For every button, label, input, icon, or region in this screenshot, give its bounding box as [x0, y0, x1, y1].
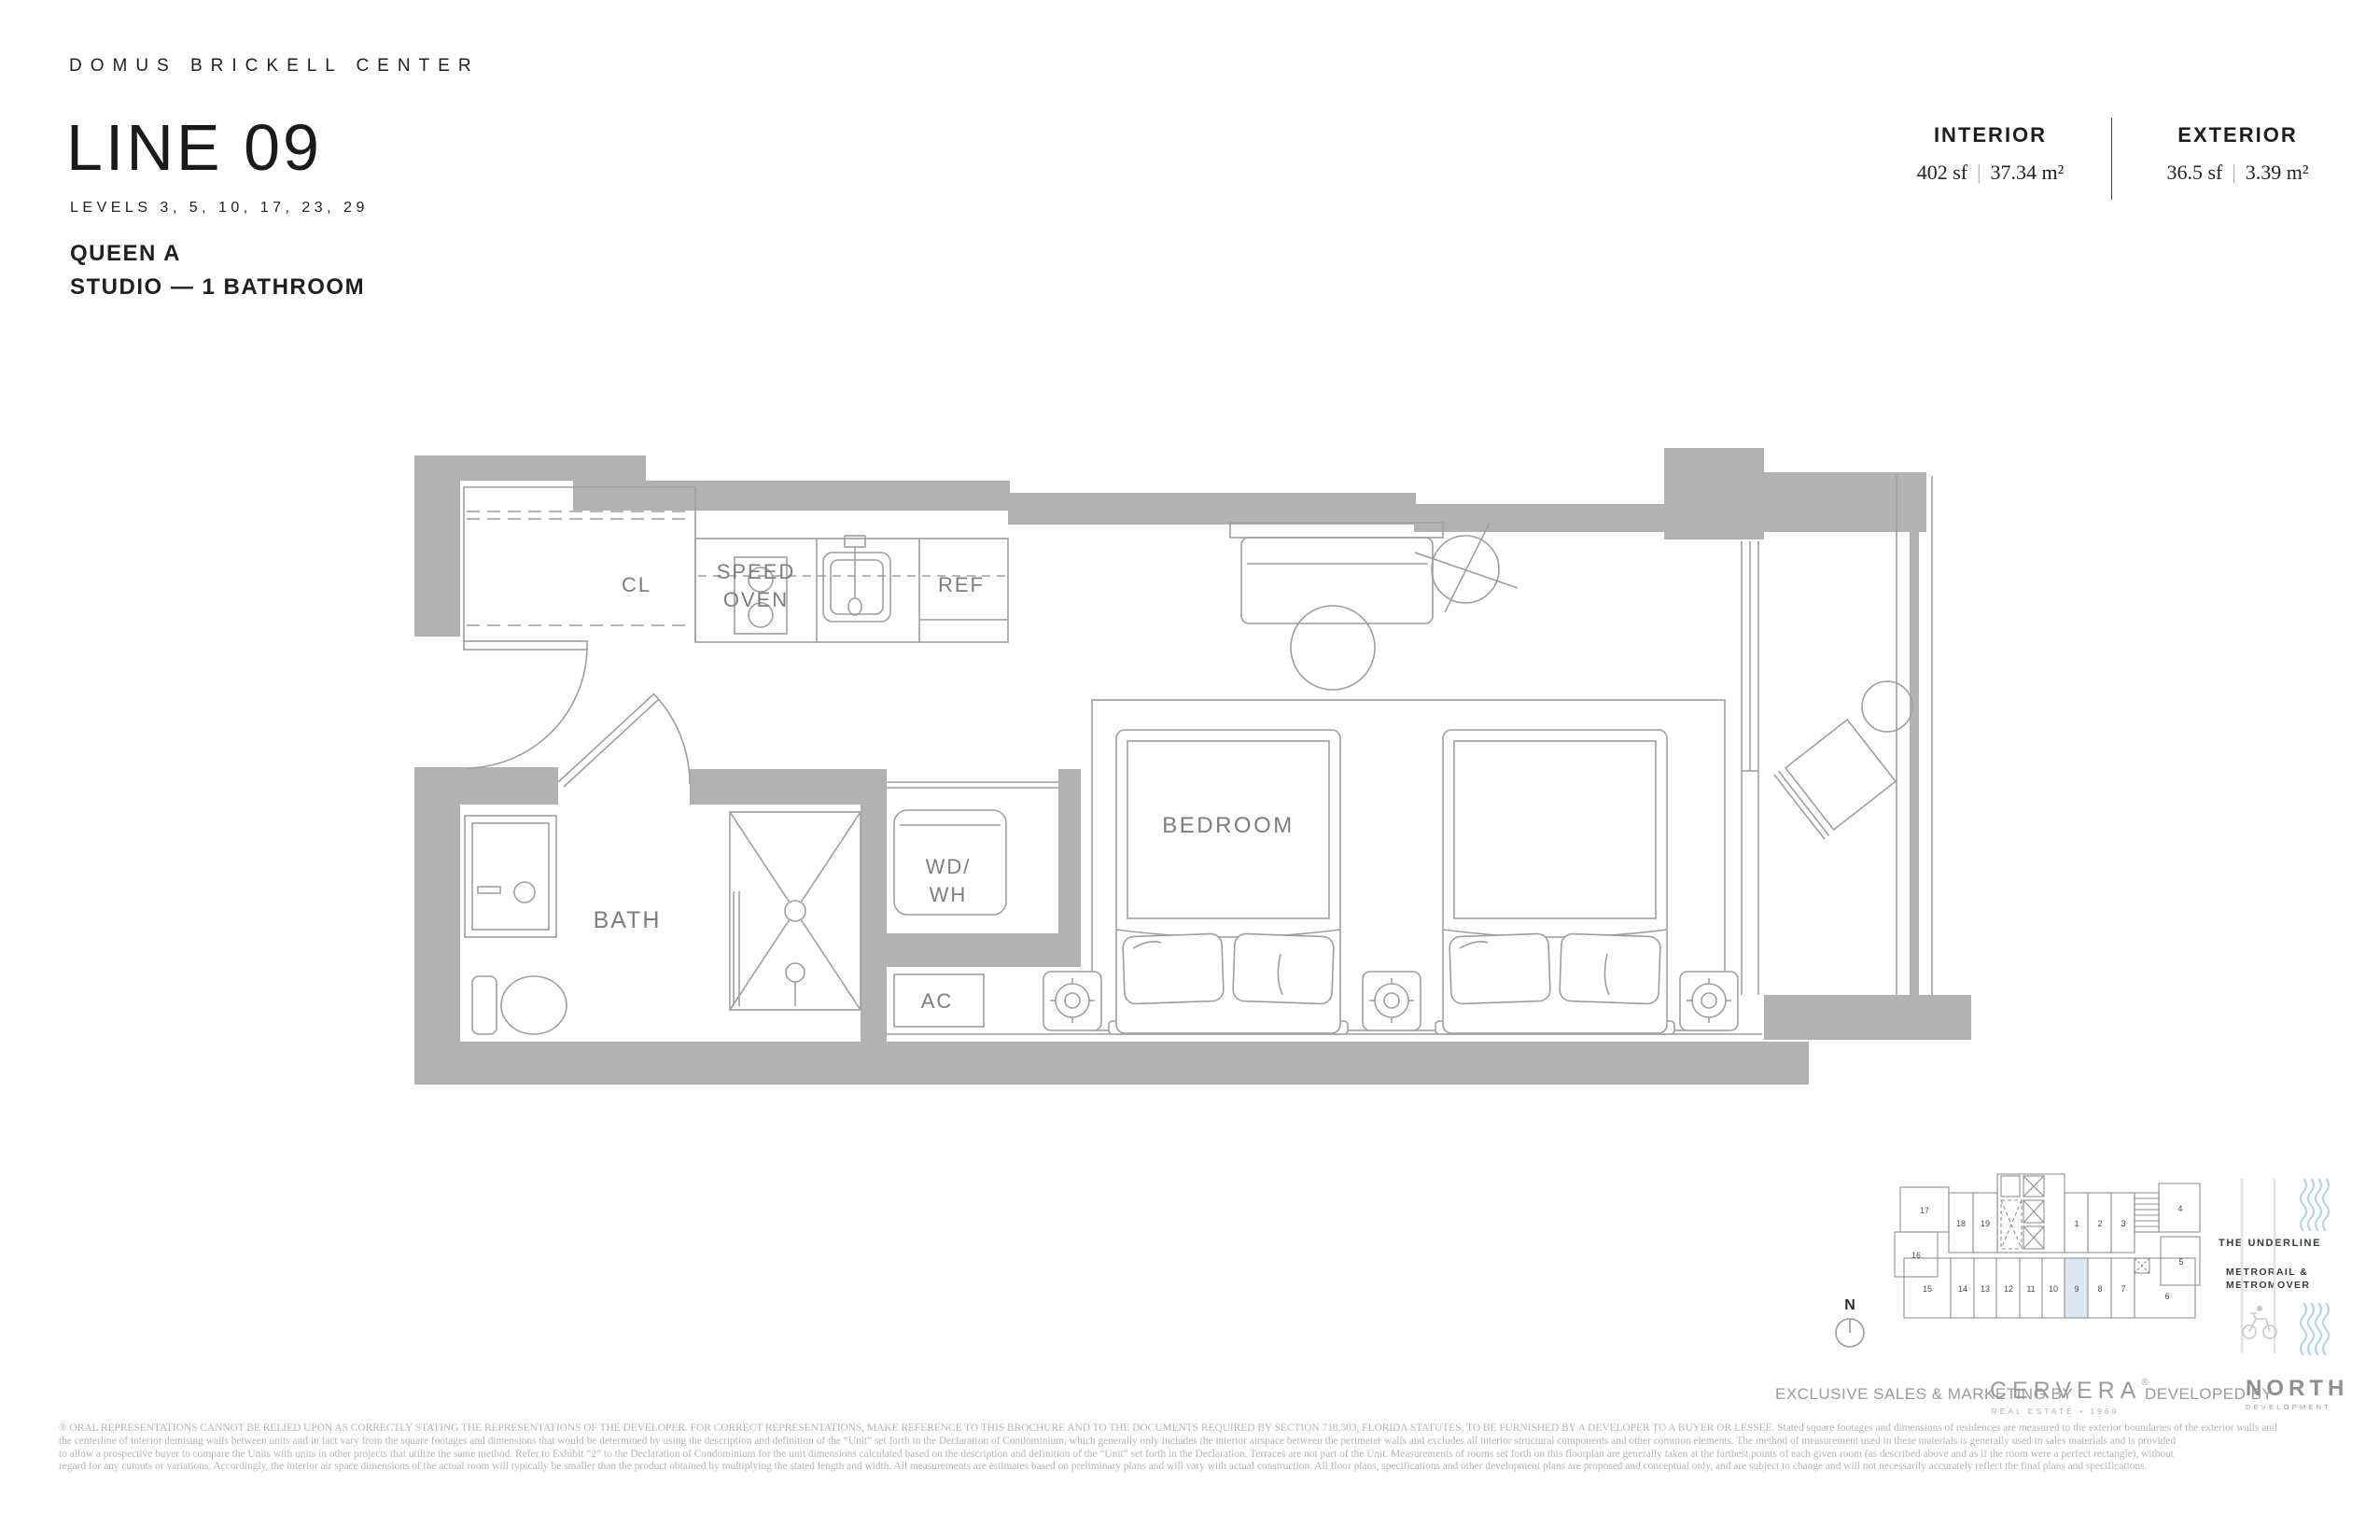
cervera-logo: CERVERA® REAL ESTATE • 1969	[1990, 1378, 2121, 1416]
disclaimer-line-2: the centerline of interior demising wall…	[59, 1435, 2336, 1449]
toilet	[472, 976, 567, 1034]
transit-label-1: METRORAIL &	[2226, 1267, 2308, 1278]
disclaimer-line-1: ® ORAL REPRESENTATIONS CANNOT BE RELIED …	[59, 1422, 2336, 1435]
kp-unit-14: 14	[1958, 1284, 1967, 1294]
nightstand-right	[1680, 972, 1738, 1030]
kp-unit-1: 1	[2074, 1219, 2079, 1228]
side-table	[1862, 681, 1912, 732]
key-plan: 1 2 3 4 5 6 7 8 9 10 11 12 13 14 15 16 1…	[1836, 1174, 2329, 1355]
kp-unit-19: 19	[1981, 1219, 1990, 1228]
kp-unit-2: 2	[2097, 1219, 2102, 1228]
kp-unit-16: 16	[1911, 1251, 1921, 1260]
label-bedroom: BEDROOM	[1162, 813, 1295, 838]
compass-n-label: N	[1844, 1297, 1855, 1313]
bicycle-icon	[2243, 1306, 2276, 1338]
label-washer: WD/	[926, 855, 972, 878]
balcony-slider	[1742, 541, 1758, 995]
kp-unit-17: 17	[1920, 1206, 1929, 1215]
cervera-wordmark: CERVERA	[1990, 1378, 2141, 1404]
compass-north: N	[1836, 1297, 1864, 1347]
disclaimer-line-3: to allow a prospective buyer to compare …	[59, 1449, 2336, 1462]
ceiling-light-icon	[1415, 523, 1518, 612]
keyplan-outline	[1895, 1174, 2200, 1318]
lounge-chair	[1774, 718, 1897, 839]
bed-right	[1435, 730, 1674, 1034]
kitchen-sink	[823, 536, 890, 622]
legal-disclaimer: ® ORAL REPRESENTATIONS CANNOT BE RELIED …	[59, 1422, 2336, 1474]
stairs-icon	[2135, 1198, 2159, 1226]
kp-unit-4: 4	[2177, 1204, 2182, 1213]
kp-unit-11: 11	[2026, 1284, 2035, 1294]
nightstand-center	[1363, 972, 1421, 1030]
kp-unit-5: 5	[2178, 1257, 2183, 1267]
washer-closet	[887, 782, 1058, 915]
disclaimer-line-4: regard for any cutouts or variations. Ac…	[59, 1461, 2336, 1474]
bed-left	[1109, 730, 1348, 1034]
north-wordmark: NORTH	[2246, 1376, 2330, 1402]
bath-door	[558, 693, 690, 787]
kp-unit-15: 15	[1923, 1284, 1932, 1294]
floorplan-canvas: CL SPEED OVEN REF BATH WD/ WH AC BEDROOM	[0, 0, 2380, 1540]
kp-unit-18: 18	[1956, 1219, 1966, 1228]
label-closet: CL	[622, 573, 651, 596]
column	[1664, 448, 1764, 539]
kp-unit-9: 9	[2074, 1284, 2079, 1294]
bath-vanity	[465, 816, 556, 937]
label-ac: AC	[921, 989, 954, 1013]
brochure-page: DOMUS BRICKELL CENTER LINE 09 LEVELS 3, …	[0, 0, 2380, 1540]
kp-unit-8: 8	[2097, 1284, 2102, 1294]
cervera-tagline: REAL ESTATE • 1969	[1990, 1407, 2121, 1416]
label-speed-oven: SPEED	[717, 560, 796, 583]
kp-unit-3: 3	[2121, 1219, 2125, 1228]
entry-door	[464, 641, 587, 768]
label-washer-2: WH	[930, 883, 968, 906]
underline-label: THE UNDERLINE	[2219, 1238, 2321, 1249]
north-tagline: DEVELOPMENT	[2246, 1403, 2330, 1411]
label-speed-oven-2: OVEN	[723, 588, 789, 611]
stool	[1291, 606, 1375, 690]
transit-label-2: METROMOVER	[2226, 1280, 2310, 1291]
kp-unit-12: 12	[2004, 1284, 2013, 1294]
balcony-rail-post	[1910, 476, 1919, 999]
dresser	[1230, 523, 1443, 623]
plan-lines	[464, 476, 1932, 1034]
label-fridge: REF	[938, 573, 985, 596]
shower	[730, 812, 861, 1010]
north-logo: NORTH DEVELOPMENT	[2246, 1376, 2330, 1411]
nightstand-left	[1043, 972, 1101, 1030]
label-bath: BATH	[594, 907, 662, 933]
kp-unit-6: 6	[2164, 1292, 2169, 1301]
kp-unit-7: 7	[2121, 1284, 2125, 1294]
kp-unit-10: 10	[2049, 1284, 2058, 1294]
kp-unit-13: 13	[1981, 1284, 1990, 1294]
